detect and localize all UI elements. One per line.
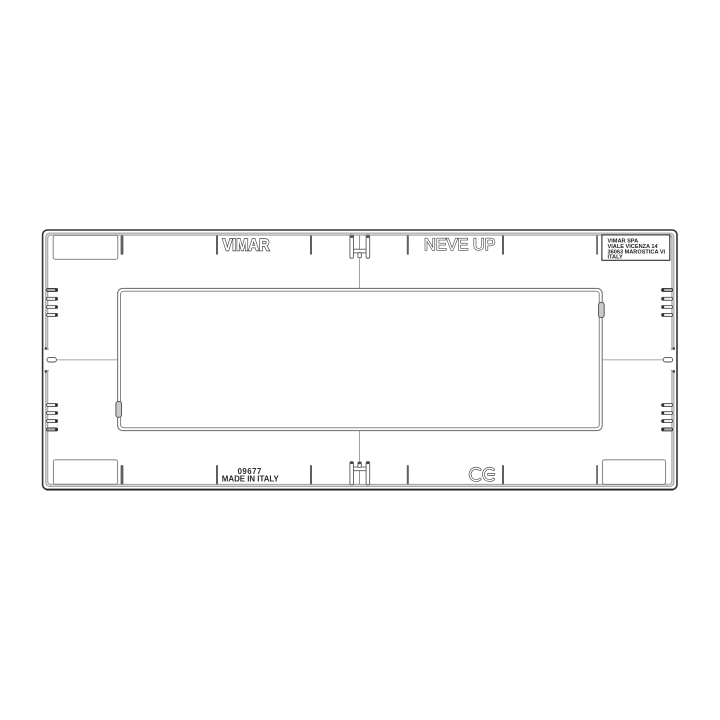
svg-text:MADE IN ITALY: MADE IN ITALY (222, 475, 280, 484)
svg-text:NEVE UP: NEVE UP (424, 236, 496, 254)
svg-text:ITALY: ITALY (608, 255, 623, 261)
svg-text:VIMAR: VIMAR (223, 235, 270, 254)
